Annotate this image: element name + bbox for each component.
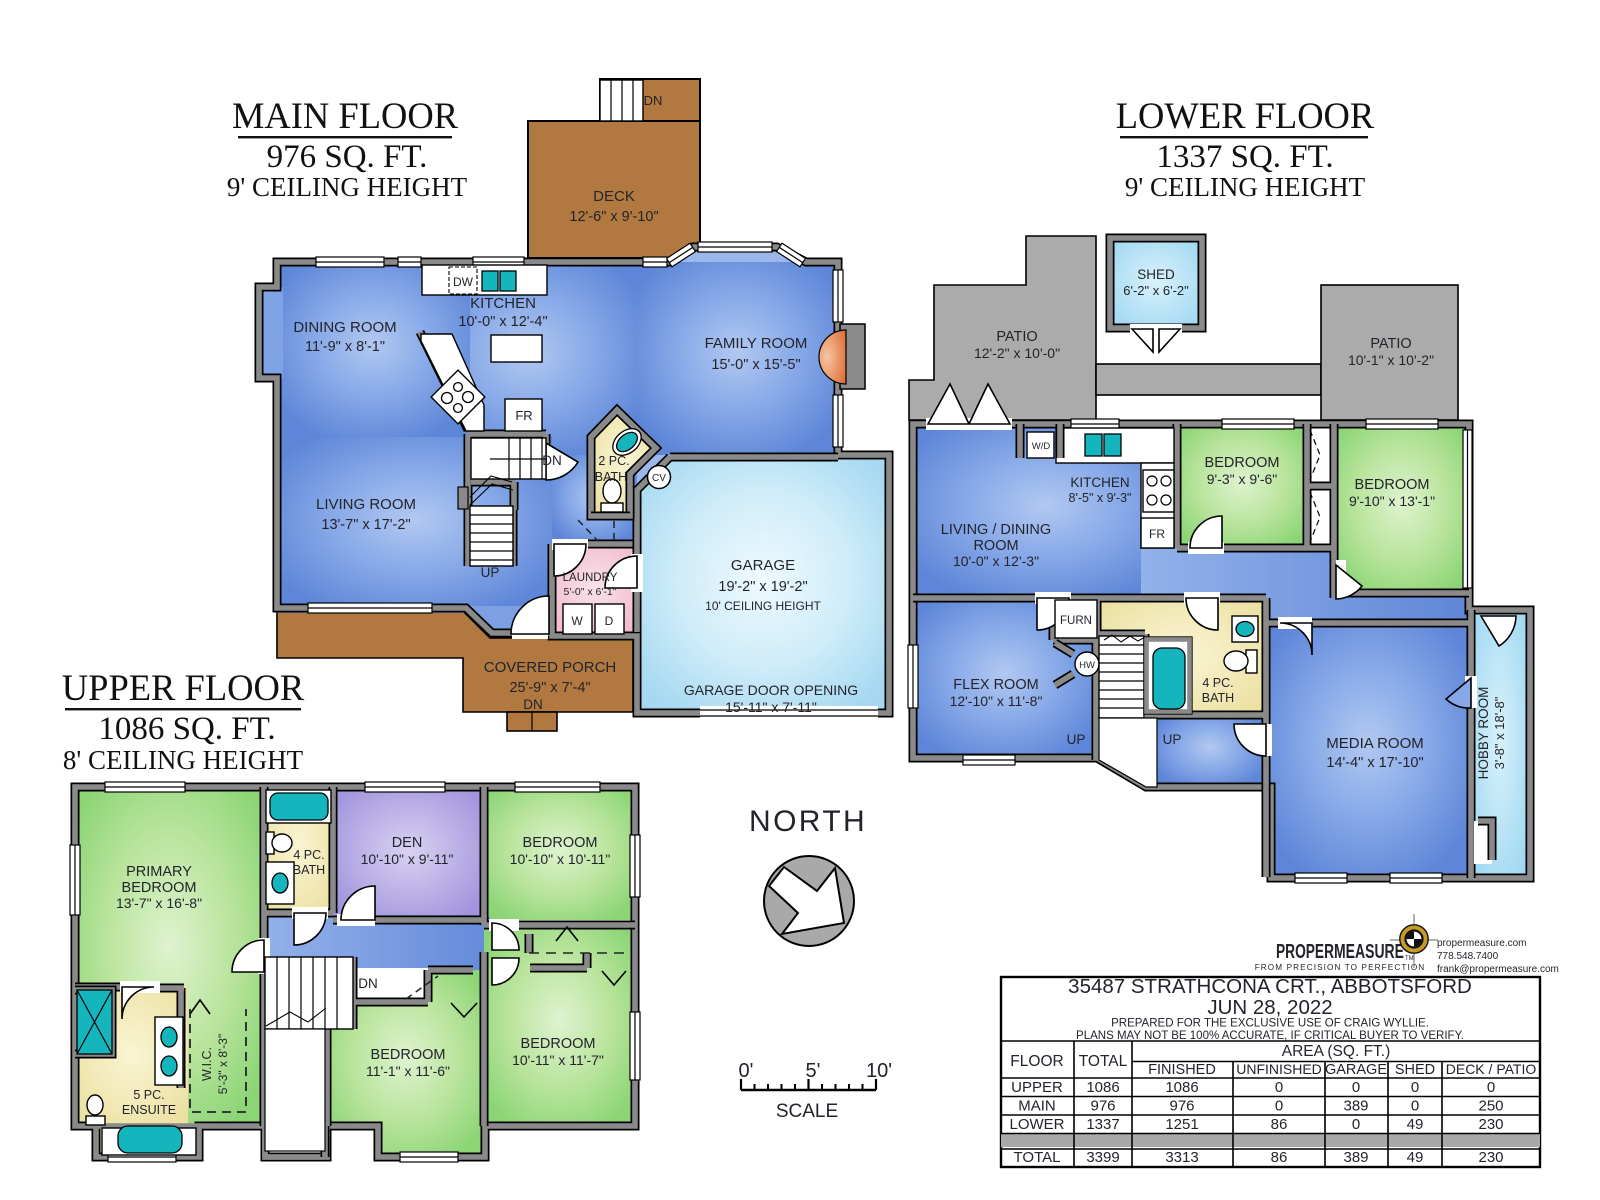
svg-text:DN: DN — [358, 976, 378, 991]
svg-text:230: 230 — [1478, 1116, 1503, 1133]
svg-text:3313: 3313 — [1165, 1149, 1198, 1166]
svg-text:W.I.C.: W.I.C. — [200, 1047, 214, 1081]
svg-text:UP: UP — [481, 565, 500, 580]
svg-text:frank@propermeasure.com: frank@propermeasure.com — [1437, 964, 1559, 975]
svg-text:2 PC.: 2 PC. — [598, 454, 629, 468]
svg-text:0: 0 — [1411, 1079, 1419, 1096]
svg-text:UNFINISHED: UNFINISHED — [1236, 1061, 1322, 1077]
svg-text:UPPER: UPPER — [1011, 1079, 1063, 1096]
svg-text:25'-9" x 7'-4": 25'-9" x 7'-4" — [509, 680, 590, 696]
svg-text:250: 250 — [1478, 1098, 1503, 1115]
svg-text:FAMILY ROOM: FAMILY ROOM — [705, 335, 808, 352]
svg-text:3399: 3399 — [1086, 1149, 1119, 1166]
svg-text:GARAGE DOOR OPENING: GARAGE DOOR OPENING — [684, 682, 858, 698]
svg-text:1086: 1086 — [1165, 1079, 1198, 1096]
svg-text:FURN: FURN — [1060, 615, 1092, 627]
svg-text:5'-0" x 6'-1": 5'-0" x 6'-1" — [564, 586, 617, 598]
svg-text:13'-7" x 17'-2": 13'-7" x 17'-2" — [321, 517, 410, 533]
svg-text:HOBBY ROOM: HOBBY ROOM — [1476, 687, 1491, 780]
svg-text:5'-3" x 8'-3": 5'-3" x 8'-3" — [216, 1034, 230, 1094]
svg-text:PROPER: PROPER — [1276, 941, 1334, 963]
svg-text:9' CEILING HEIGHT: 9' CEILING HEIGHT — [1125, 172, 1366, 202]
svg-text:MAIN: MAIN — [1018, 1098, 1056, 1115]
svg-text:10'-10" x 10'-11": 10'-10" x 10'-11" — [510, 851, 611, 867]
svg-text:SCALE: SCALE — [776, 1101, 838, 1122]
svg-text:HW: HW — [1079, 660, 1095, 671]
svg-text:TOTAL: TOTAL — [1079, 1053, 1128, 1070]
svg-text:ROOM: ROOM — [973, 538, 1018, 554]
svg-text:FROM PRECISION TO PERFECTION: FROM PRECISION TO PERFECTION — [1255, 963, 1426, 972]
svg-text:1086: 1086 — [1086, 1079, 1119, 1096]
svg-text:MEDIA ROOM: MEDIA ROOM — [1326, 735, 1424, 752]
svg-text:propermeasure.com: propermeasure.com — [1437, 938, 1526, 949]
svg-text:PATIO: PATIO — [1370, 336, 1411, 352]
svg-text:PRIMARY: PRIMARY — [126, 864, 192, 880]
svg-text:9' CEILING HEIGHT: 9' CEILING HEIGHT — [227, 172, 468, 202]
svg-text:13'-7" x 16'-8": 13'-7" x 16'-8" — [116, 895, 202, 911]
svg-text:BEDROOM: BEDROOM — [371, 1047, 446, 1063]
svg-text:LIVING / DINING: LIVING / DINING — [941, 522, 1051, 538]
svg-text:DN: DN — [644, 93, 663, 108]
svg-text:976: 976 — [1090, 1098, 1115, 1115]
svg-text:DW: DW — [453, 275, 474, 289]
svg-text:UP: UP — [1067, 732, 1086, 747]
svg-text:976 SQ. FT.: 976 SQ. FT. — [267, 139, 428, 175]
svg-text:12'-2" x 10'-0": 12'-2" x 10'-0" — [974, 345, 1060, 361]
svg-text:BEDROOM: BEDROOM — [122, 880, 197, 896]
svg-text:ENSUITE: ENSUITE — [122, 1103, 176, 1117]
svg-text:KITCHEN: KITCHEN — [1070, 475, 1129, 490]
svg-text:10'-1" x 10'-2": 10'-1" x 10'-2" — [1348, 352, 1434, 368]
svg-text:0: 0 — [1352, 1116, 1360, 1133]
svg-text:1086 SQ. FT.: 1086 SQ. FT. — [98, 711, 275, 747]
svg-text:FLEX ROOM: FLEX ROOM — [953, 677, 1038, 693]
svg-text:BEDROOM: BEDROOM — [1205, 455, 1280, 471]
svg-text:11'-9" x 8'-1": 11'-9" x 8'-1" — [305, 339, 385, 355]
svg-text:TOTAL: TOTAL — [1014, 1149, 1061, 1166]
svg-text:15'-11" x 7'-11": 15'-11" x 7'-11" — [725, 699, 817, 715]
svg-text:FLOOR: FLOOR — [1010, 1053, 1063, 1070]
svg-text:49: 49 — [1407, 1149, 1424, 1166]
svg-text:0': 0' — [739, 1060, 754, 1082]
svg-text:8'-5" x 9'-3": 8'-5" x 9'-3" — [1069, 491, 1132, 505]
svg-text:5 PC.: 5 PC. — [133, 1088, 164, 1102]
svg-text:389: 389 — [1343, 1098, 1368, 1115]
svg-text:1337 SQ. FT.: 1337 SQ. FT. — [1156, 139, 1333, 175]
svg-text:D: D — [605, 614, 614, 628]
svg-text:86: 86 — [1271, 1116, 1288, 1133]
svg-text:PREPARED FOR THE EXCLUSIVE USE: PREPARED FOR THE EXCLUSIVE USE OF CRAIG … — [1111, 1018, 1429, 1030]
svg-text:230: 230 — [1478, 1149, 1503, 1166]
svg-text:MAIN FLOOR: MAIN FLOOR — [232, 95, 459, 136]
svg-text:LAUNDRY: LAUNDRY — [563, 572, 618, 584]
svg-text:BEDROOM: BEDROOM — [521, 1036, 596, 1052]
svg-text:12'-6" x 9'-10": 12'-6" x 9'-10" — [569, 209, 658, 225]
svg-text:49: 49 — [1407, 1116, 1424, 1133]
svg-text:1337: 1337 — [1086, 1116, 1119, 1133]
svg-text:1251: 1251 — [1165, 1116, 1198, 1133]
svg-text:19'-2" x 19'-2": 19'-2" x 19'-2" — [718, 579, 807, 595]
svg-text:0: 0 — [1352, 1079, 1360, 1096]
svg-text:14'-4" x 17'-10": 14'-4" x 17'-10" — [1326, 755, 1423, 771]
svg-text:9'-10" x 13'-1": 9'-10" x 13'-1" — [1349, 493, 1435, 509]
svg-text:DECK / PATIO: DECK / PATIO — [1446, 1061, 1537, 1077]
svg-text:10' CEILING HEIGHT: 10' CEILING HEIGHT — [705, 599, 821, 613]
svg-text:DECK: DECK — [593, 188, 635, 205]
svg-text:10'-0" x 12'-4": 10'-0" x 12'-4" — [458, 314, 547, 330]
svg-text:4 PC.: 4 PC. — [1202, 676, 1233, 690]
svg-text:0: 0 — [1275, 1079, 1283, 1096]
svg-text:10'-10" x 9'-11": 10'-10" x 9'-11" — [361, 851, 454, 867]
svg-text:NORTH: NORTH — [749, 805, 867, 838]
svg-text:GARAGE: GARAGE — [731, 557, 795, 574]
svg-text:BATH: BATH — [1202, 691, 1234, 705]
svg-text:LOWER FLOOR: LOWER FLOOR — [1116, 95, 1375, 136]
svg-text:10'-0" x 12'-3": 10'-0" x 12'-3" — [953, 553, 1039, 569]
svg-text:976: 976 — [1169, 1098, 1194, 1115]
svg-text:DEN: DEN — [392, 835, 423, 851]
svg-text:COVERED PORCH: COVERED PORCH — [484, 659, 617, 676]
svg-text:3'-8" x 18'-8": 3'-8" x 18'-8" — [1492, 696, 1507, 769]
svg-text:KITCHEN: KITCHEN — [470, 295, 536, 312]
svg-text:MEASURE: MEASURE — [1334, 941, 1404, 963]
svg-text:0: 0 — [1487, 1079, 1495, 1096]
svg-text:11'-1" x 11'-6": 11'-1" x 11'-6" — [366, 1063, 450, 1079]
svg-text:BATH: BATH — [595, 470, 627, 484]
svg-text:W/D: W/D — [1032, 441, 1051, 452]
svg-text:15'-0" x 15'-5": 15'-0" x 15'-5" — [711, 357, 800, 373]
svg-text:FR: FR — [1149, 527, 1165, 541]
svg-text:GARAGE: GARAGE — [1325, 1062, 1387, 1078]
svg-text:0: 0 — [1275, 1098, 1283, 1115]
svg-text:778.548.7400: 778.548.7400 — [1437, 951, 1499, 962]
svg-text:DN: DN — [542, 453, 562, 468]
svg-text:4 PC.: 4 PC. — [293, 848, 324, 862]
svg-text:BATH: BATH — [293, 863, 325, 877]
svg-text:BEDROOM: BEDROOM — [1355, 477, 1430, 493]
svg-text:CV: CV — [652, 473, 666, 484]
svg-text:DN: DN — [523, 697, 543, 712]
svg-text:JUN 28, 2022: JUN 28, 2022 — [1207, 996, 1332, 1019]
svg-text:8' CEILING HEIGHT: 8' CEILING HEIGHT — [63, 745, 304, 775]
svg-text:0: 0 — [1411, 1098, 1419, 1115]
svg-text:LOWER: LOWER — [1009, 1116, 1064, 1133]
svg-text:BEDROOM: BEDROOM — [523, 835, 598, 851]
svg-text:FINISHED: FINISHED — [1148, 1062, 1216, 1078]
svg-text:12'-10" x 11'-8": 12'-10" x 11'-8" — [950, 693, 1043, 709]
svg-text:SHED: SHED — [1137, 267, 1175, 282]
svg-text:W: W — [571, 614, 583, 628]
svg-text:10': 10' — [866, 1060, 892, 1082]
svg-text:35487 STRATHCONA CRT., ABBOTSF: 35487 STRATHCONA CRT., ABBOTSFORD — [1068, 975, 1472, 998]
svg-text:TM: TM — [1405, 956, 1414, 962]
svg-text:5': 5' — [806, 1060, 821, 1082]
svg-text:PLANS MAY NOT BE 100% ACCURATE: PLANS MAY NOT BE 100% ACCURATE, IF CRITI… — [1076, 1030, 1464, 1042]
svg-text:SHED: SHED — [1395, 1062, 1435, 1078]
svg-text:86: 86 — [1271, 1149, 1288, 1166]
svg-text:FR: FR — [515, 408, 532, 423]
svg-text:UP: UP — [1163, 732, 1182, 747]
svg-text:10'-11" x 11'-7": 10'-11" x 11'-7" — [512, 1052, 604, 1068]
svg-text:PATIO: PATIO — [996, 329, 1037, 345]
svg-text:9'-3" x 9'-6": 9'-3" x 9'-6" — [1207, 471, 1278, 487]
svg-text:AREA (SQ. FT.): AREA (SQ. FT.) — [1282, 1043, 1391, 1060]
svg-text:389: 389 — [1343, 1149, 1368, 1166]
svg-text:DINING ROOM: DINING ROOM — [293, 319, 396, 336]
svg-text:LIVING ROOM: LIVING ROOM — [316, 496, 416, 513]
svg-text:UPPER FLOOR: UPPER FLOOR — [62, 667, 305, 708]
svg-text:6'-2" x 6'-2": 6'-2" x 6'-2" — [1123, 283, 1189, 298]
